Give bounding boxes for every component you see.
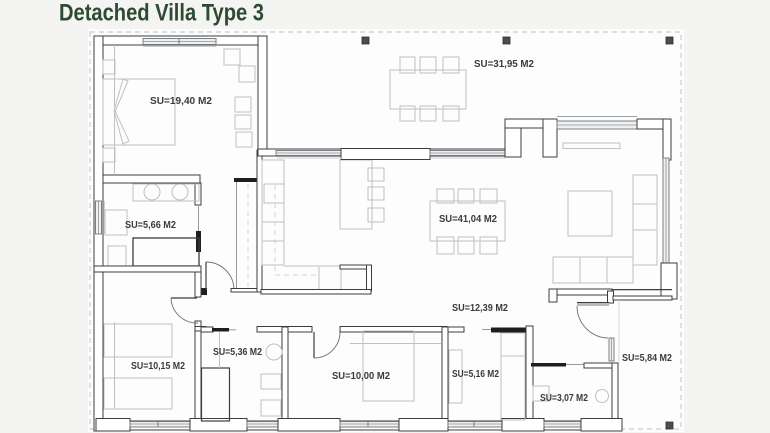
svg-text:SU=31,95 M2: SU=31,95 M2 bbox=[474, 59, 534, 70]
svg-text:SU=5,16 M2: SU=5,16 M2 bbox=[452, 369, 499, 380]
svg-text:SU=10,15 M2: SU=10,15 M2 bbox=[131, 361, 185, 372]
svg-text:SU=5,36 M2: SU=5,36 M2 bbox=[213, 347, 262, 358]
svg-text:SU=41,04 M2: SU=41,04 M2 bbox=[439, 214, 497, 225]
svg-text:SU=5,84 M2: SU=5,84 M2 bbox=[622, 353, 672, 364]
svg-text:SU=3,07 M2: SU=3,07 M2 bbox=[540, 393, 588, 404]
svg-text:SU=19,40 M2: SU=19,40 M2 bbox=[150, 96, 212, 107]
svg-text:Detached Villa Type 3: Detached Villa Type 3 bbox=[59, 0, 264, 27]
svg-text:SU=5,66 M2: SU=5,66 M2 bbox=[125, 220, 176, 231]
svg-text:SU=10,00 M2: SU=10,00 M2 bbox=[332, 371, 390, 382]
svg-text:SU=12,39 M2: SU=12,39 M2 bbox=[452, 303, 508, 314]
